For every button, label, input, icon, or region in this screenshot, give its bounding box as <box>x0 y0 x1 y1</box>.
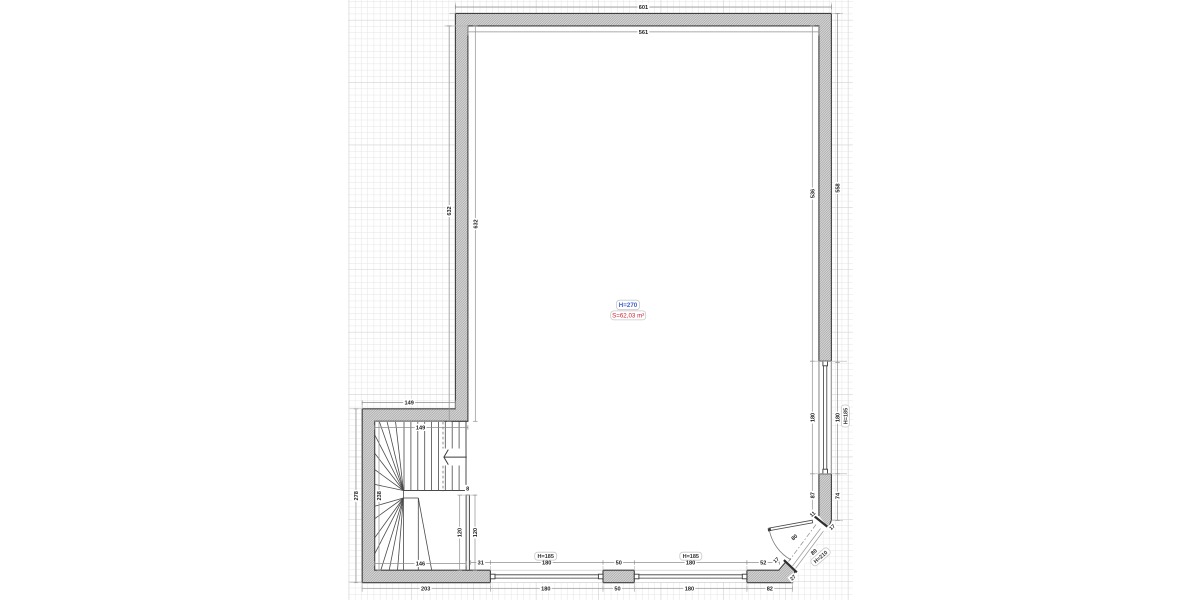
svg-text:50: 50 <box>614 586 620 592</box>
svg-text:H=185: H=185 <box>843 408 849 424</box>
svg-text:H=185: H=185 <box>683 554 699 560</box>
svg-text:180: 180 <box>686 561 695 567</box>
svg-text:120: 120 <box>458 528 464 537</box>
svg-text:74: 74 <box>836 492 842 499</box>
svg-text:50: 50 <box>616 561 622 567</box>
svg-text:180: 180 <box>542 561 551 567</box>
svg-text:238: 238 <box>377 491 383 500</box>
svg-text:203: 203 <box>421 586 430 592</box>
svg-text:278: 278 <box>354 491 360 500</box>
svg-text:536: 536 <box>810 189 816 198</box>
svg-text:149: 149 <box>416 425 425 431</box>
svg-text:632: 632 <box>473 219 479 228</box>
svg-text:180: 180 <box>810 413 816 422</box>
svg-text:561: 561 <box>639 30 648 36</box>
svg-text:120: 120 <box>473 528 479 537</box>
svg-text:558: 558 <box>836 183 842 192</box>
svg-text:149: 149 <box>405 401 414 407</box>
svg-text:180: 180 <box>836 413 842 422</box>
svg-text:S=62,03 m²: S=62,03 m² <box>612 313 644 320</box>
svg-text:31: 31 <box>478 561 484 567</box>
svg-text:52: 52 <box>760 561 766 567</box>
svg-text:146: 146 <box>416 562 425 568</box>
svg-text:180: 180 <box>685 586 694 592</box>
svg-text:632: 632 <box>447 206 453 215</box>
svg-text:H=270: H=270 <box>619 302 638 309</box>
svg-text:82: 82 <box>767 586 773 592</box>
svg-text:180: 180 <box>541 586 550 592</box>
svg-text:H=185: H=185 <box>538 554 554 560</box>
svg-text:601: 601 <box>639 5 648 11</box>
svg-text:87: 87 <box>810 492 816 498</box>
svg-text:8: 8 <box>466 486 469 492</box>
